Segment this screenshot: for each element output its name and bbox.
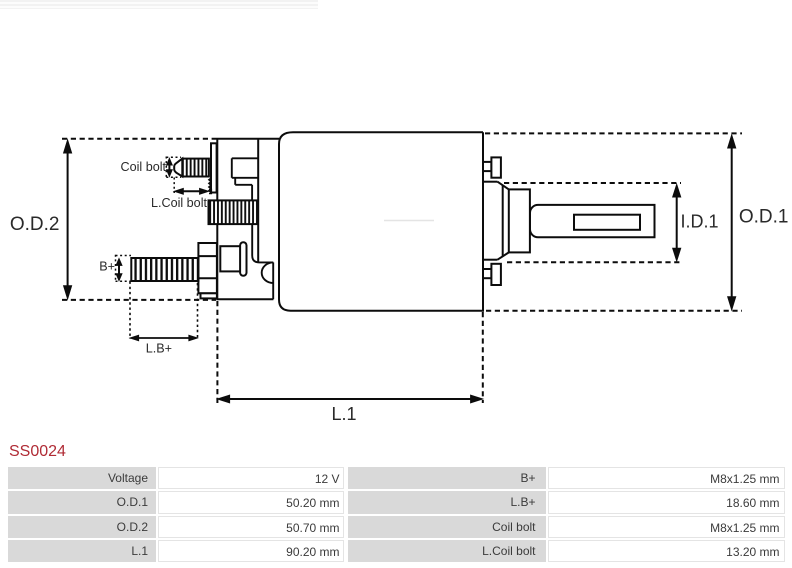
svg-text:O.D.1: O.D.1 <box>739 207 789 228</box>
svg-text:O.D.2: O.D.2 <box>10 214 60 235</box>
svg-text:Coil bolt: Coil bolt <box>121 160 167 174</box>
svg-text:L.Coil bolt: L.Coil bolt <box>151 196 208 210</box>
svg-text:L.1: L.1 <box>331 404 356 424</box>
svg-text:L.B+: L.B+ <box>146 342 172 356</box>
svg-text:I.D.1: I.D.1 <box>680 212 718 232</box>
svg-text:B+: B+ <box>99 260 115 274</box>
